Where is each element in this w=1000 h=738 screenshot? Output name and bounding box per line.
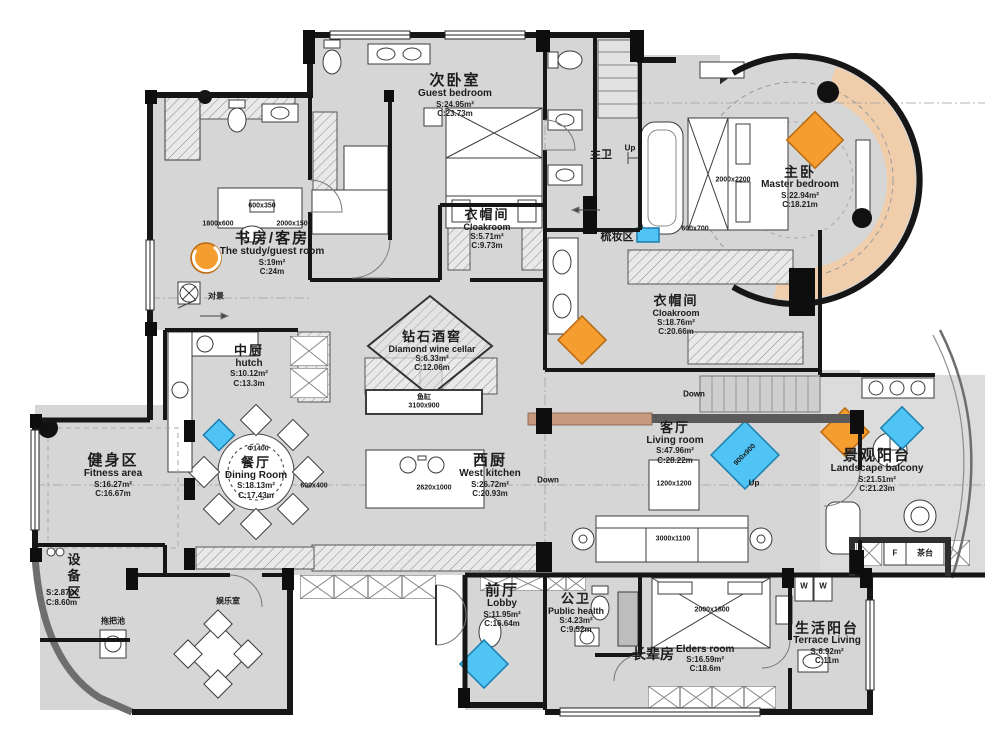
equipment-dot [47, 548, 55, 556]
label-master-bath: 主卫 [590, 146, 612, 162]
room-label-cloakroom-small: 衣帽间 Cloakroom S:5.71m² C:9.73m [463, 208, 510, 251]
plant-1 [817, 81, 839, 103]
master-tv-cabinet [856, 140, 870, 218]
label-fish-tank: 鱼缸 [417, 392, 431, 402]
dressing-vanity [548, 238, 578, 334]
dim-dining-side: 600x400 [300, 483, 327, 490]
dim-sofa: 3000x1100 [656, 536, 691, 543]
room-label-wine-cellar: 钻石酒窖 Diamond wine cellar S:6.33m² C:12.0… [388, 330, 475, 373]
dim-master-side: 600x700 [681, 226, 708, 233]
room-label-public-bath: 公卫 Public health S:4.23m² C:9.52m [548, 592, 604, 635]
room-label-cloakroom-master: 衣帽间 Cloakroom S:18.76m² C:20.66m [652, 294, 699, 337]
dim-kitchen-island: 2620x1000 [416, 485, 451, 492]
floor-plan: 次卧室 Guest bedroom S:24.95m² C:23.73m 主卧 … [0, 0, 1000, 738]
room-label-elders: 长辈房 Elders room S:16.59m² C:18.6m [632, 644, 734, 673]
corridor-steps [700, 376, 820, 412]
room-label-dining: 餐厅 Dining Room S:18.13m² C:17.43m [225, 456, 287, 500]
label-entertainment: 娱乐室 [216, 596, 240, 607]
label-up-stairs: Up [625, 144, 636, 153]
label-mop-pool: 拖把池 [101, 616, 125, 627]
dim-study-box: 600x350 [248, 203, 275, 210]
dim-study-desk-b: 2000x1500 [276, 221, 311, 228]
room-label-lobby: 前厅 Lobby S:11.95m² C:16.64m [483, 582, 520, 628]
dim-study-desk-a: 1800x600 [202, 221, 233, 228]
label-up-living: Up [749, 479, 760, 488]
dim-elders-bed: 2000x1800 [694, 607, 729, 614]
label-washer-1: W [800, 582, 808, 591]
room-label-hutch: 中厨 hutch S:10.12m² C:13.3m [230, 344, 268, 388]
room-label-fitness: 健身区 Fitness area S:16.27m² C:16.67m [84, 452, 142, 498]
label-washer-2: W [819, 582, 827, 591]
label-dressing-area: 梳妆区 [601, 228, 634, 244]
bathtub [641, 122, 683, 234]
label-down-kitchen: Down [537, 476, 559, 485]
label-down-corridor: Down [683, 390, 705, 399]
room-label-living: 客厅 Living room S:47.96m² C:28.22m [646, 421, 703, 465]
plant-2 [852, 208, 872, 228]
dressing-stool-blue [637, 228, 659, 242]
equipment-area-text: S:2.87m² C:8.60m [46, 588, 79, 609]
label-view: 对景 [208, 291, 224, 302]
room-label-balcony: 景观阳台 Landscape balcony S:21.51m² C:21.23… [831, 447, 924, 493]
room-label-west-kitchen: 西厨 West kitchen S:26.72m² C:20.93m [459, 452, 521, 498]
fan-icon [178, 282, 200, 304]
dim-fish-tank: 3100x900 [408, 403, 439, 410]
label-fridge: F [893, 549, 898, 558]
room-label-study: 书房/客房 The study/guest room S:19m² C:24m [220, 230, 324, 276]
label-tea-table: 茶台 [917, 548, 933, 559]
dim-master-bed: 2000x2200 [715, 177, 750, 184]
dim-living-rug: 1200x1200 [656, 481, 691, 488]
room-label-guest-bedroom: 次卧室 Guest bedroom S:24.95m² C:23.73m [418, 72, 492, 118]
dim-dining-table: Φ1400 [247, 446, 268, 453]
room-label-terrace: 生活阳台 Terrace Living S:6.92m² C:11m [793, 620, 861, 665]
room-label-master-bedroom: 主卧 Master bedroom S:22.94m² C:18.21m [761, 164, 839, 209]
